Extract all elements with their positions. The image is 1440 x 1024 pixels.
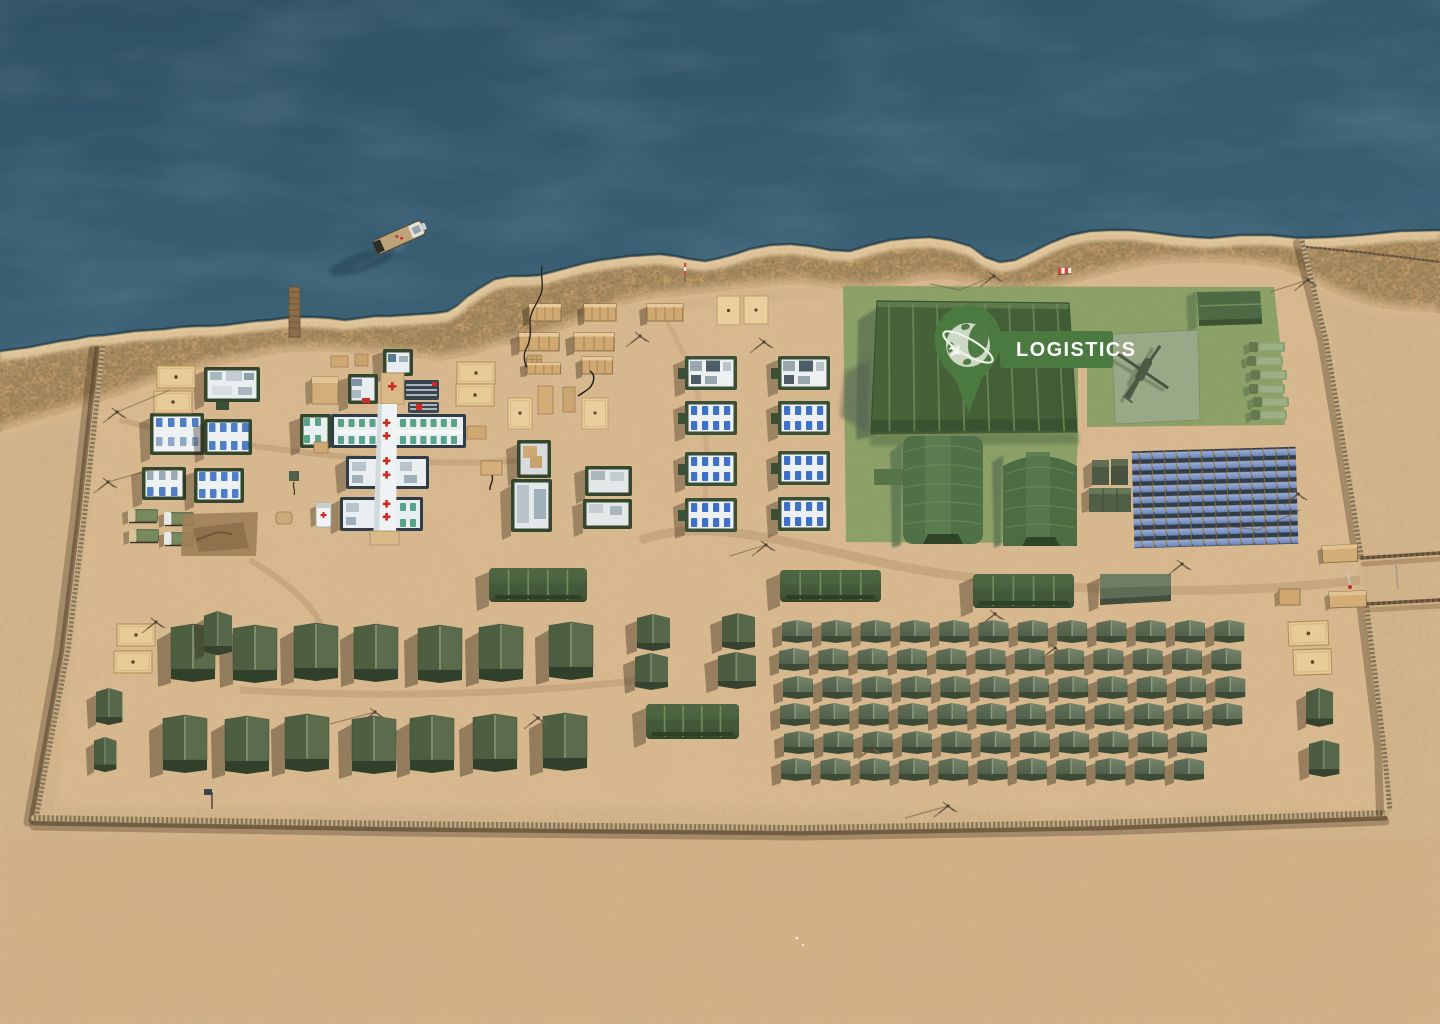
svg-text:LOGISTICS: LOGISTICS <box>1016 339 1136 361</box>
